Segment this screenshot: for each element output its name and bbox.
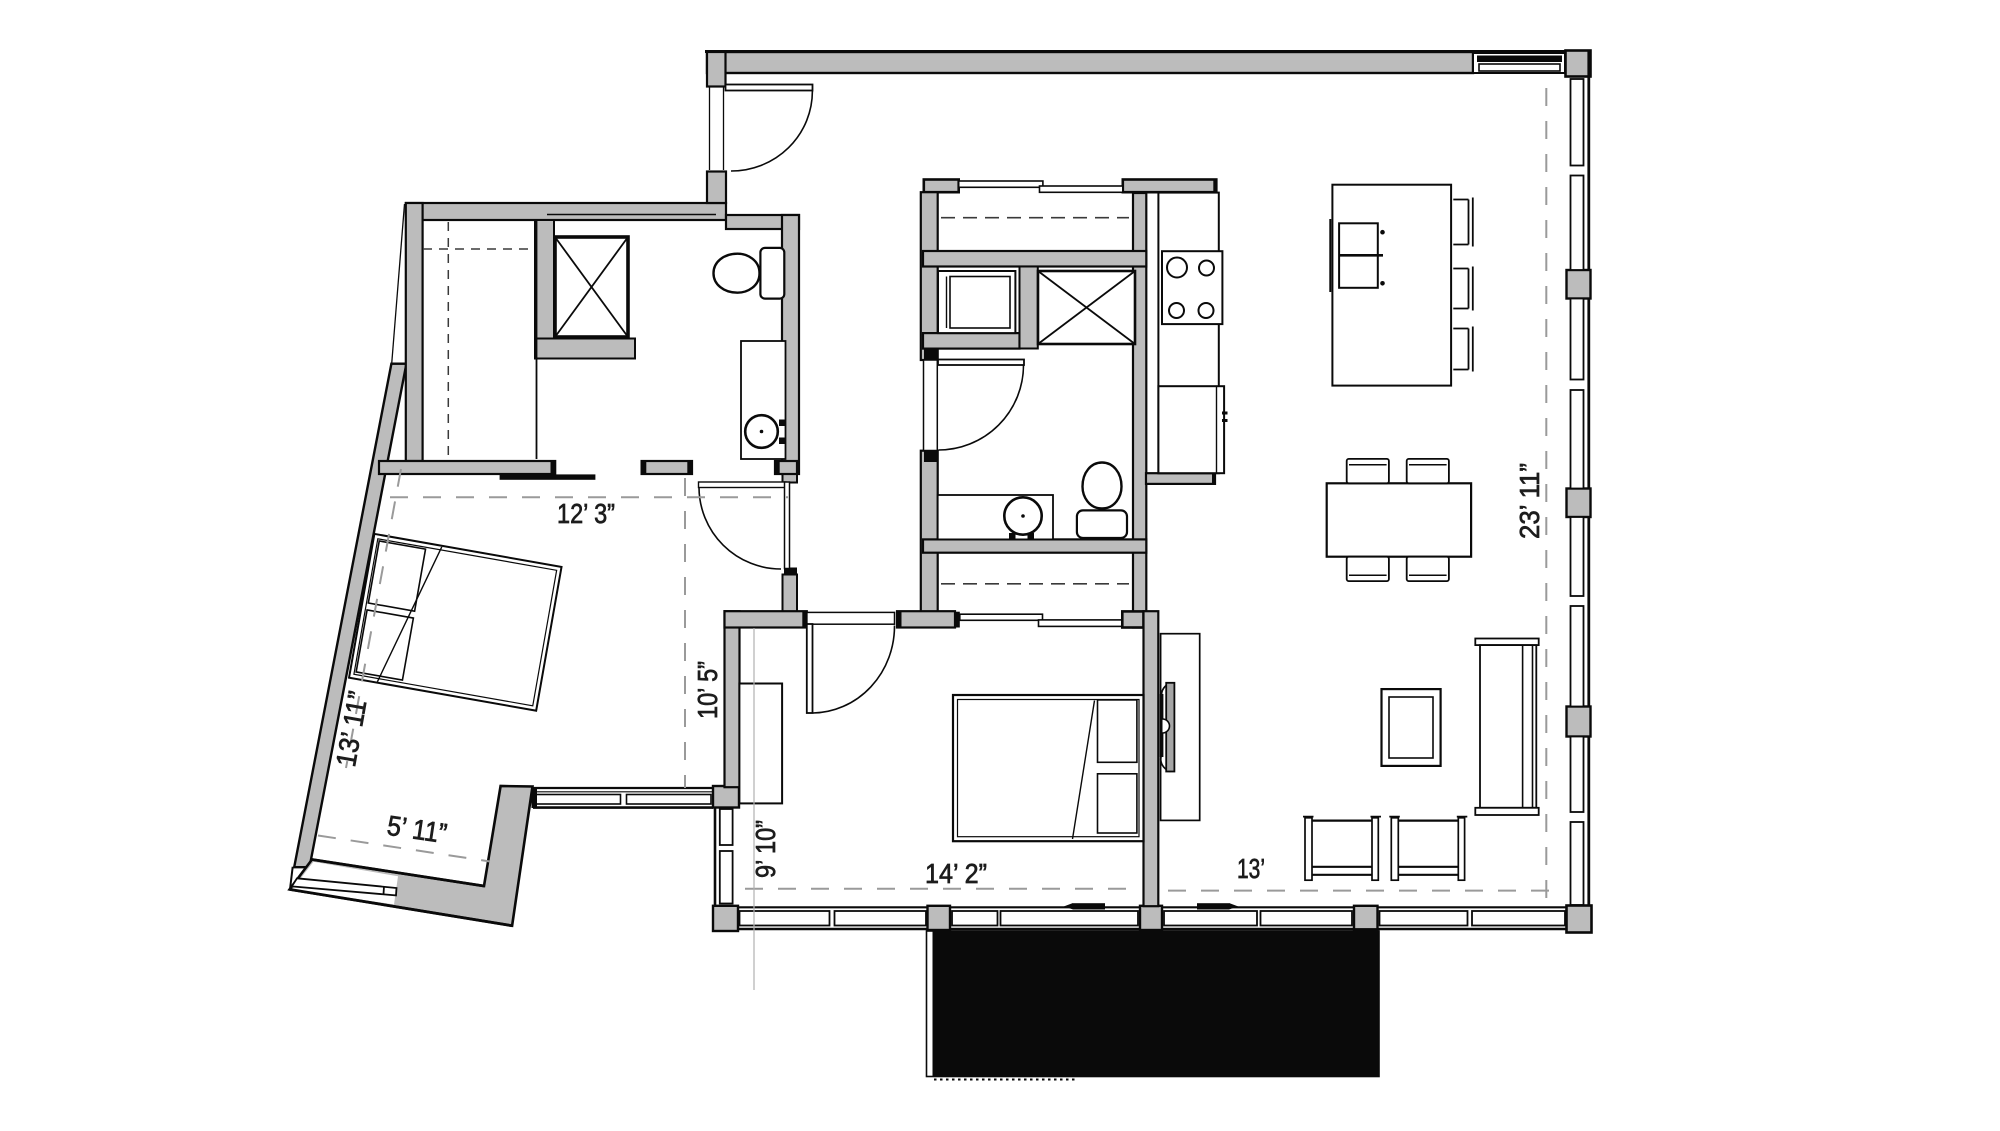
- svg-text:14’ 2”: 14’ 2”: [925, 858, 987, 889]
- svg-text:13’: 13’: [1237, 853, 1265, 884]
- svg-text:12’ 3”: 12’ 3”: [557, 498, 615, 529]
- svg-text:10’ 5”: 10’ 5”: [692, 661, 723, 719]
- svg-text:9’ 10”: 9’ 10”: [750, 820, 781, 878]
- svg-text:23’ 11”: 23’ 11”: [1514, 463, 1545, 539]
